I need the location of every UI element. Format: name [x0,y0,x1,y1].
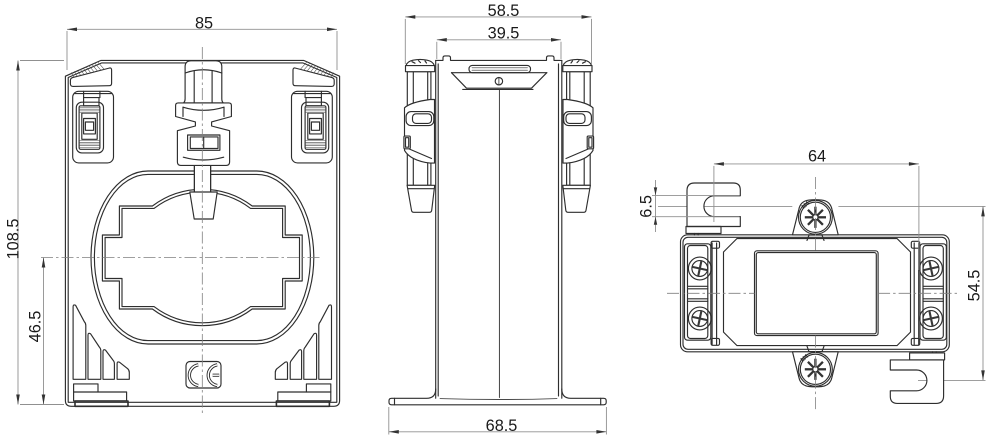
svg-text:6.5: 6.5 [638,195,656,218]
svg-text:108.5: 108.5 [5,219,23,260]
svg-text:85: 85 [195,14,213,32]
svg-text:54.5: 54.5 [966,270,984,302]
svg-text:58.5: 58.5 [488,2,520,20]
svg-text:68.5: 68.5 [486,417,518,435]
svg-text:64: 64 [808,148,826,166]
svg-text:39.5: 39.5 [488,25,520,43]
svg-text:46.5: 46.5 [27,311,45,343]
